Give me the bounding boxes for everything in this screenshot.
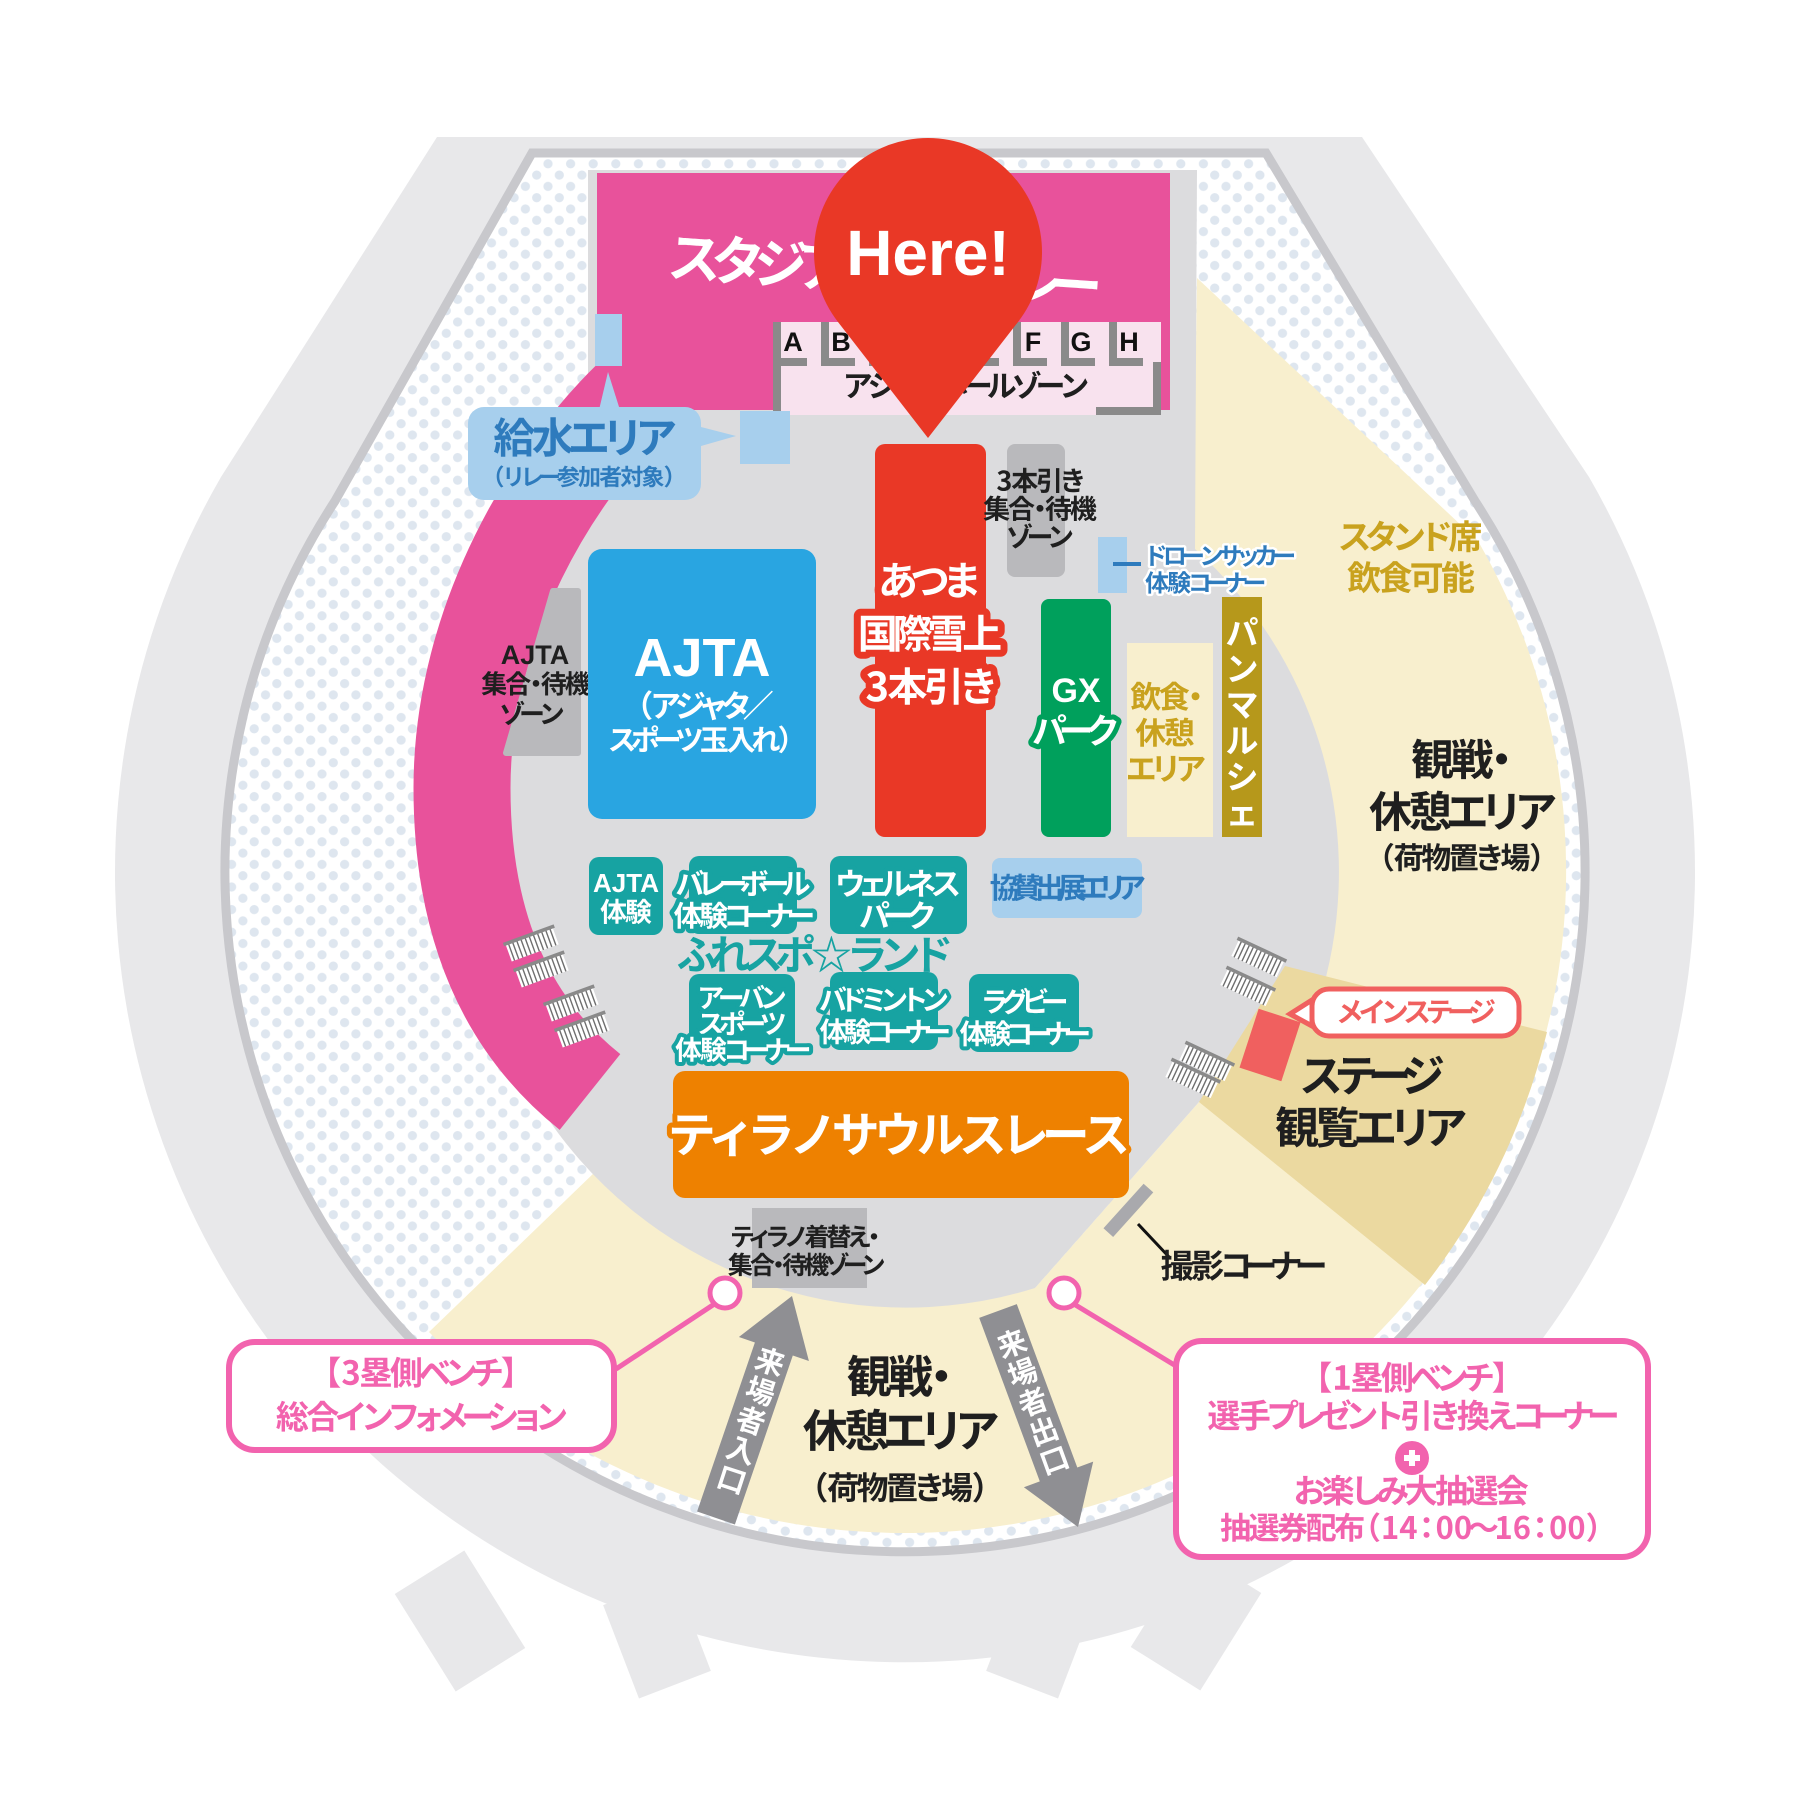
svg-text:H: H [1119,327,1139,357]
svg-text:F: F [1025,327,1042,357]
svg-text:A: A [783,327,803,357]
svg-text:Here!: Here! [846,217,1010,289]
svg-text:GX: GX [1051,672,1100,710]
svg-text:AJTA: AJTA [633,628,770,688]
svg-text:G: G [1070,327,1091,357]
svg-text:AJTA: AJTA [501,640,570,670]
svg-text:AJTA: AJTA [593,868,659,898]
